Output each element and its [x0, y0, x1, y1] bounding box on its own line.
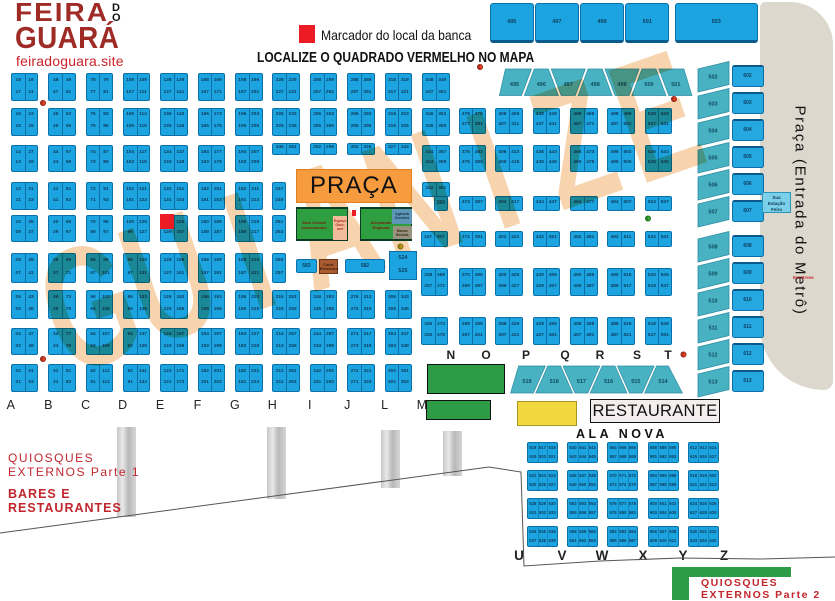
svg-text:500: 500 [644, 82, 653, 88]
svg-text:495: 495 [510, 82, 519, 88]
svg-text:504: 504 [708, 129, 718, 135]
svg-text:505: 505 [708, 156, 717, 162]
svg-text:497: 497 [564, 82, 573, 88]
svg-text:518: 518 [550, 379, 559, 385]
svg-text:511: 511 [709, 326, 718, 332]
svg-text:512: 512 [708, 353, 717, 359]
svg-text:516: 516 [604, 379, 613, 385]
svg-text:517: 517 [577, 379, 586, 385]
svg-text:501: 501 [671, 82, 680, 88]
svg-text:510: 510 [708, 299, 717, 305]
svg-text:508: 508 [708, 245, 717, 251]
svg-text:502: 502 [708, 75, 717, 81]
svg-text:506: 506 [708, 183, 717, 189]
svg-text:509: 509 [708, 272, 717, 278]
svg-text:513: 513 [708, 380, 717, 386]
svg-text:515: 515 [631, 379, 640, 385]
svg-text:499: 499 [617, 82, 626, 88]
svg-text:519: 519 [522, 379, 531, 385]
svg-text:498: 498 [591, 82, 600, 88]
svg-text:503: 503 [708, 102, 717, 108]
svg-text:514: 514 [658, 379, 668, 385]
svg-text:507: 507 [708, 210, 717, 216]
svg-text:496: 496 [537, 82, 546, 88]
